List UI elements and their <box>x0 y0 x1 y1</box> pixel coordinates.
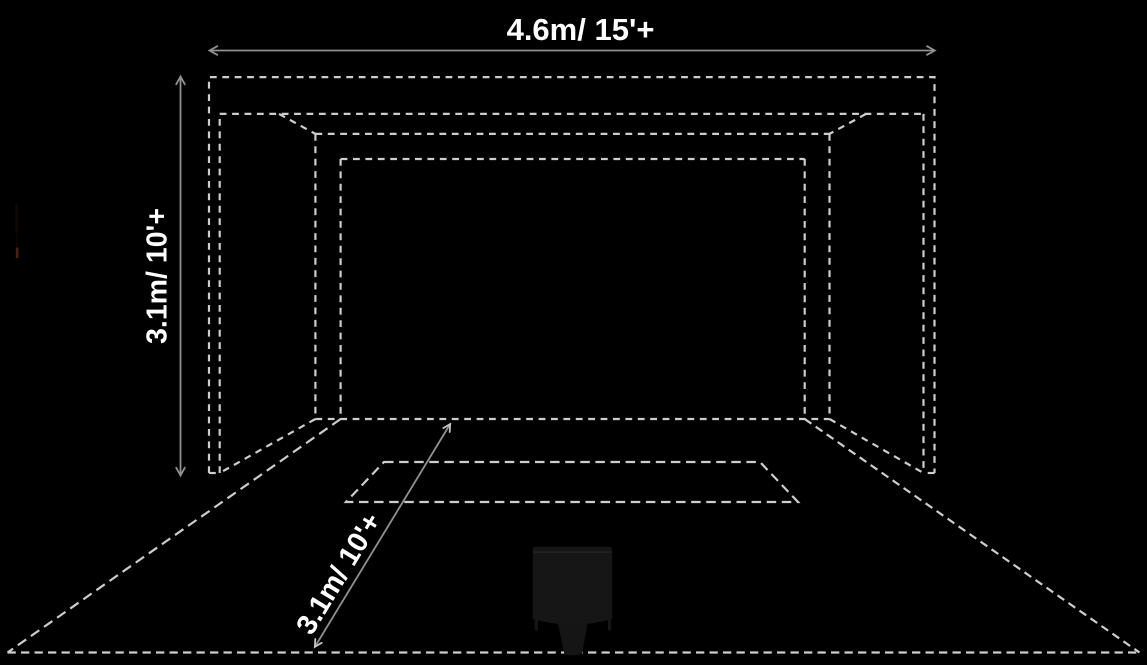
svg-text:4.6m/ 15'+: 4.6m/ 15'+ <box>507 12 655 47</box>
svg-text:3.1m/ 10'+: 3.1m/ 10'+ <box>142 208 174 344</box>
